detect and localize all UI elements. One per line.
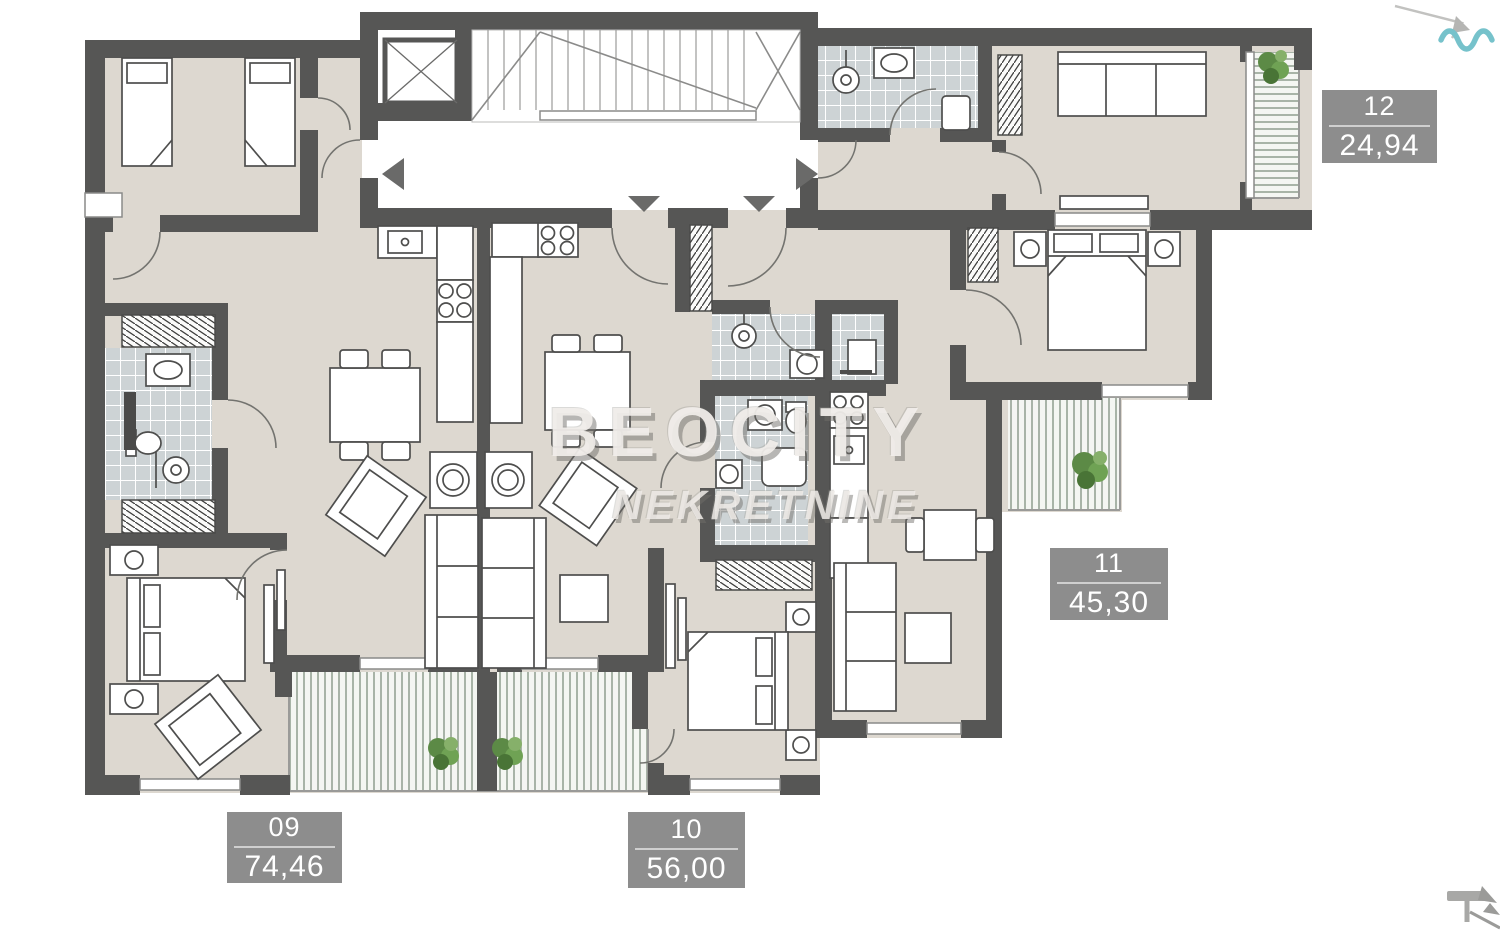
apartment-area: 74,46 [244, 851, 324, 883]
chair [552, 335, 580, 352]
kitchen-counter [437, 322, 473, 422]
apartment-number: 12 [1363, 92, 1395, 123]
label-divider [1057, 582, 1161, 584]
side-table [560, 575, 608, 622]
label-divider [1329, 125, 1430, 127]
sofa [425, 515, 478, 668]
chair [340, 350, 368, 368]
wave-icon [1441, 31, 1492, 49]
toilet [942, 96, 970, 130]
balcony-10 [497, 672, 648, 791]
floor-plan-svg [0, 0, 1500, 930]
chair [594, 335, 622, 352]
label-divider [635, 848, 738, 850]
apartment-label-10: 10 56,00 [628, 812, 745, 888]
dining-table [924, 510, 976, 560]
wardrobe [690, 225, 712, 311]
chair [976, 518, 994, 552]
dining-table [545, 352, 630, 430]
kitchen-counter [437, 226, 473, 280]
tv [678, 598, 686, 660]
floor-plan-sheet: BEOCITY NEKRETNINE 09 74,46 10 56,00 11 … [0, 0, 1500, 930]
chair [340, 442, 368, 460]
apartment-area: 45,30 [1069, 587, 1149, 619]
bathtub [762, 448, 806, 486]
console-table [1060, 196, 1148, 209]
chair [382, 442, 410, 460]
wardrobe [122, 500, 215, 533]
double-bed [688, 632, 788, 730]
staircase [472, 30, 800, 122]
sofa-bed [1058, 52, 1206, 116]
apartment-area: 24,94 [1339, 130, 1419, 162]
tv [277, 570, 285, 630]
chair [382, 350, 410, 368]
apartment-number: 09 [268, 813, 300, 844]
elevator [385, 40, 457, 103]
wardrobe [716, 560, 812, 590]
apartment-number: 10 [670, 815, 702, 846]
balcony-09 [289, 672, 477, 791]
kitchen-counter [492, 223, 539, 257]
tv [666, 584, 675, 668]
coffee-table [905, 613, 951, 663]
kitchen-counter [490, 257, 522, 423]
label-divider [234, 846, 335, 848]
radiator [998, 55, 1022, 135]
wardrobe [122, 315, 215, 347]
apartment-label-12: 12 24,94 [1322, 90, 1437, 163]
apartment-label-09: 09 74,46 [227, 812, 342, 883]
chair [552, 430, 580, 447]
compass-sketch [1395, 6, 1470, 38]
apartment-number: 11 [1094, 549, 1124, 580]
toilet [848, 340, 876, 374]
apartment-area: 56,00 [646, 853, 726, 885]
apartment-label-11: 11 45,30 [1050, 548, 1168, 620]
chair [594, 430, 622, 447]
radiator [968, 228, 998, 282]
dining-table [330, 368, 420, 442]
tv [264, 585, 274, 663]
sofa [834, 563, 896, 711]
stair-handrail [540, 111, 756, 120]
chair [906, 518, 924, 552]
sofa [482, 518, 546, 668]
north-arrow-icon [1447, 886, 1500, 928]
